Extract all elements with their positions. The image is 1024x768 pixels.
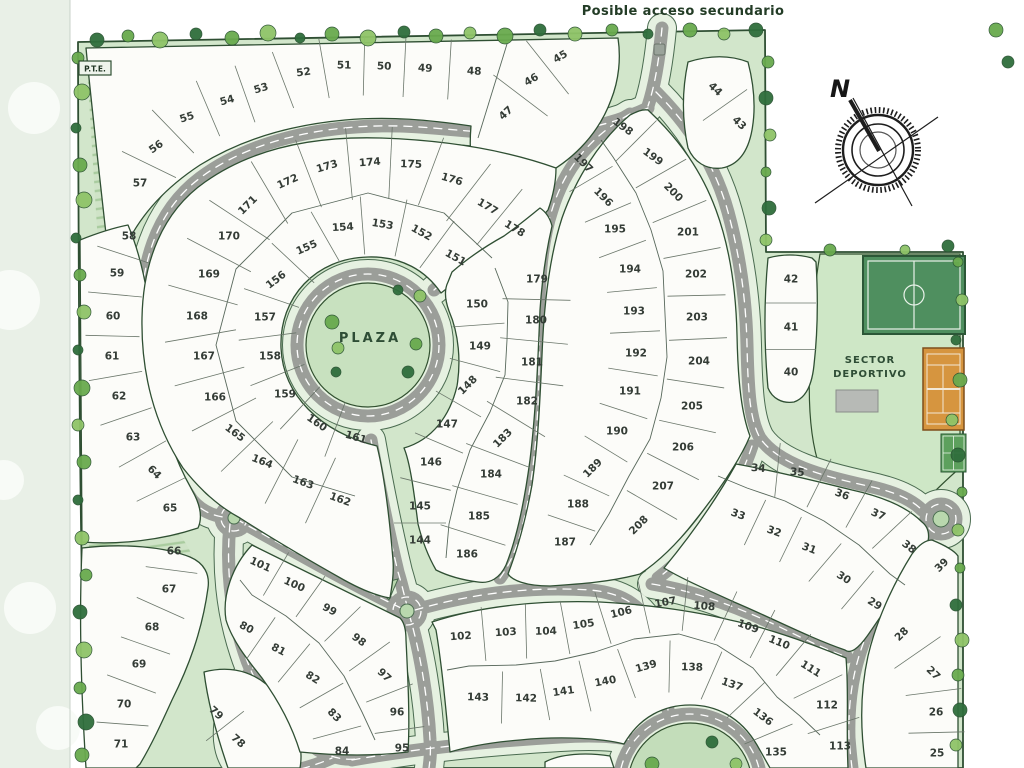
- lot-number[interactable]: 25: [930, 748, 945, 760]
- lot-number[interactable]: 35: [789, 466, 805, 479]
- lot-number[interactable]: 184: [480, 469, 502, 481]
- lot-number[interactable]: 142: [515, 692, 537, 704]
- lot-number[interactable]: 169: [198, 269, 220, 281]
- lot-number[interactable]: 194: [619, 264, 641, 276]
- lot-number[interactable]: 71: [114, 739, 129, 751]
- gate-marker: [654, 44, 665, 55]
- soccer-field: [863, 256, 965, 334]
- lot-number[interactable]: 166: [204, 392, 226, 404]
- lot-number[interactable]: 207: [652, 481, 674, 493]
- lot-number[interactable]: 57: [133, 178, 148, 190]
- lot-number[interactable]: 68: [145, 622, 160, 634]
- lot-number[interactable]: 103: [494, 626, 517, 640]
- culdesac-island: [933, 511, 949, 527]
- lot-number[interactable]: 96: [390, 707, 405, 719]
- lot-number[interactable]: 158: [259, 351, 281, 363]
- access-label: Posible acceso secundario: [582, 4, 785, 19]
- sector-label-line1: SECTOR: [845, 355, 895, 366]
- lot-number[interactable]: 159: [274, 389, 296, 401]
- lot-number[interactable]: 204: [688, 356, 710, 368]
- parking-area: [836, 390, 878, 412]
- lot-number[interactable]: 61: [105, 351, 120, 363]
- lot-number[interactable]: 202: [685, 269, 707, 281]
- lot-number[interactable]: 34: [750, 462, 766, 475]
- lot-number[interactable]: 67: [162, 584, 177, 596]
- lot-number[interactable]: 191: [619, 386, 641, 398]
- lot-number[interactable]: 108: [693, 600, 716, 614]
- lot-number[interactable]: 203: [686, 312, 708, 324]
- lot-number[interactable]: 150: [466, 299, 488, 311]
- lot-number[interactable]: 192: [625, 348, 647, 360]
- lot-number[interactable]: 147: [436, 419, 458, 431]
- lot-number[interactable]: 181: [521, 357, 543, 369]
- plaza-label: PLAZA: [339, 331, 401, 346]
- lot-number[interactable]: 60: [106, 311, 121, 323]
- lot-number[interactable]: 186: [456, 549, 478, 561]
- lot-number[interactable]: 52: [296, 66, 312, 80]
- subdivision-map-page: 2526272829303132333435363738394041424344…: [0, 0, 1024, 768]
- sector-label-line2: DEPORTIVO: [833, 369, 907, 380]
- lot-number[interactable]: 170: [218, 231, 240, 243]
- lot-number[interactable]: 40: [784, 367, 799, 379]
- pte-marker: P.T.E.: [79, 61, 111, 75]
- lot-number[interactable]: 201: [677, 227, 699, 239]
- lot-number[interactable]: 145: [409, 501, 431, 513]
- lot-number[interactable]: 146: [420, 457, 442, 469]
- lot-number[interactable]: 69: [132, 659, 147, 671]
- lot-number[interactable]: 84: [335, 746, 350, 758]
- compass-icon: [815, 98, 938, 206]
- lot-number[interactable]: 182: [516, 396, 538, 408]
- lot-number[interactable]: 154: [332, 221, 355, 234]
- lot-number[interactable]: 174: [358, 156, 381, 170]
- lot-number[interactable]: 59: [110, 268, 125, 280]
- lot-number[interactable]: 41: [784, 322, 799, 334]
- lot-number[interactable]: 113: [829, 741, 851, 753]
- lot-number[interactable]: 95: [395, 743, 410, 755]
- lot-number[interactable]: 195: [604, 224, 626, 236]
- lot-number[interactable]: 51: [337, 59, 352, 71]
- lot-number[interactable]: 179: [526, 274, 548, 286]
- lot-number[interactable]: 66: [167, 546, 182, 558]
- lot-number[interactable]: 144: [409, 535, 431, 547]
- lot-number[interactable]: 206: [672, 442, 694, 454]
- lot-number[interactable]: 49: [418, 62, 433, 75]
- lot-number[interactable]: 48: [467, 65, 482, 78]
- lot-number[interactable]: 112: [816, 700, 838, 712]
- lot-number[interactable]: 65: [163, 503, 178, 515]
- lot-number[interactable]: 190: [606, 426, 628, 438]
- margin-strip: [0, 0, 80, 768]
- compass-north-label: N: [830, 75, 850, 103]
- block-44-43: [684, 57, 755, 169]
- lot-number[interactable]: 175: [400, 158, 422, 171]
- lot-number[interactable]: 143: [467, 691, 489, 703]
- lot-number[interactable]: 102: [449, 630, 472, 644]
- lot-number[interactable]: 157: [254, 312, 276, 324]
- lot-number[interactable]: 138: [681, 661, 703, 673]
- lot-number[interactable]: 135: [765, 747, 787, 759]
- lot-number[interactable]: 187: [554, 537, 576, 549]
- pte-label: P.T.E.: [84, 65, 106, 74]
- lot-number[interactable]: 149: [469, 341, 491, 353]
- lot-number[interactable]: 26: [929, 707, 944, 719]
- lot-number[interactable]: 168: [186, 311, 208, 323]
- lot-number[interactable]: 185: [468, 511, 490, 523]
- lot-number[interactable]: 70: [117, 699, 132, 711]
- roundabout-island-center: [400, 604, 414, 618]
- lot-number[interactable]: 180: [525, 315, 547, 327]
- lot-number[interactable]: 42: [784, 274, 799, 286]
- lot-number[interactable]: 193: [623, 306, 645, 318]
- lot-number[interactable]: 58: [122, 231, 137, 243]
- lot-number[interactable]: 63: [126, 432, 141, 444]
- lot-number[interactable]: 205: [681, 401, 703, 413]
- lot-number[interactable]: 50: [377, 60, 392, 73]
- lot-number[interactable]: 104: [535, 625, 557, 637]
- lot-number[interactable]: 167: [193, 351, 215, 363]
- subdivision-map: 2526272829303132333435363738394041424344…: [0, 0, 1024, 768]
- lot-number[interactable]: 188: [567, 499, 589, 511]
- lot-number[interactable]: 62: [112, 391, 127, 403]
